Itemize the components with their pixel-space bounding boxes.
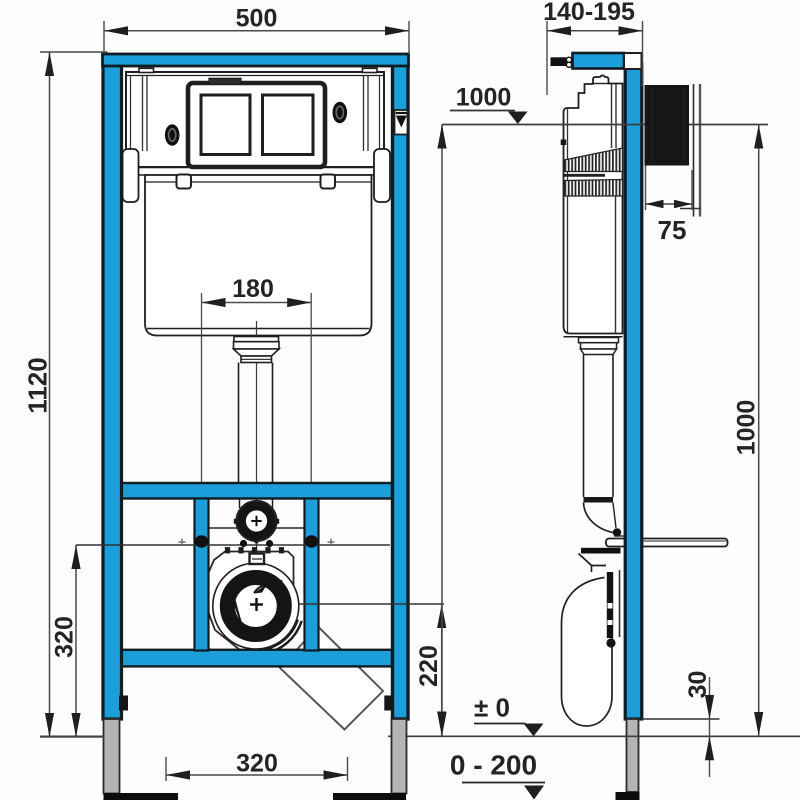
svg-text:1120: 1120 <box>23 357 53 413</box>
svg-text:220: 220 <box>415 645 443 687</box>
svg-text:500: 500 <box>236 5 278 33</box>
svg-text:320: 320 <box>51 616 79 658</box>
svg-text:320: 320 <box>236 750 278 778</box>
svg-text:1000: 1000 <box>456 84 512 112</box>
svg-text:0 - 200: 0 - 200 <box>450 750 537 781</box>
svg-text:180: 180 <box>232 275 274 303</box>
svg-text:1000: 1000 <box>733 400 761 456</box>
svg-text:30: 30 <box>684 671 712 699</box>
svg-text:75: 75 <box>658 215 687 245</box>
svg-text:140-195: 140-195 <box>543 0 635 26</box>
svg-text:± 0: ± 0 <box>474 693 510 723</box>
